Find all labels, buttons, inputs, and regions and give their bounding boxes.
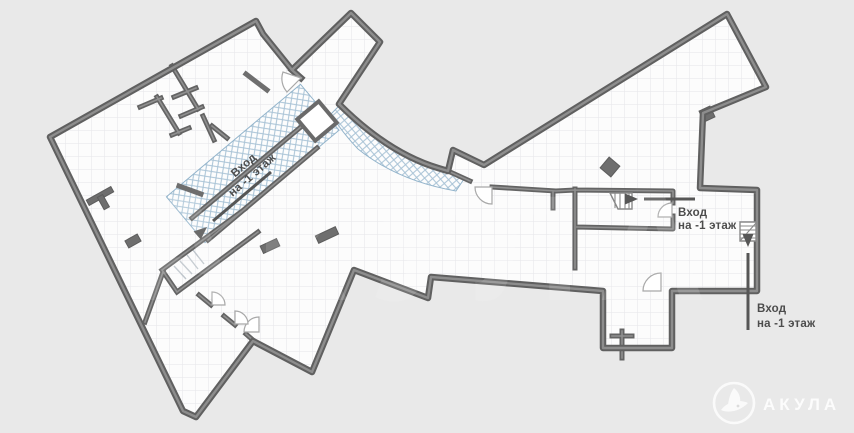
floor-plan-screenshot: Вход на -1 этаж Вход на -1 этаж Вход на …: [0, 0, 854, 433]
logo-text: АКУЛА: [763, 395, 840, 414]
watermark-text: АКУЛА: [130, 164, 725, 332]
floor-plan-canvas: Вход на -1 этаж Вход на -1 этаж Вход на …: [0, 0, 854, 433]
svg-text:Вход: Вход: [757, 303, 787, 315]
svg-text:на -1 этаж: на -1 этаж: [757, 318, 816, 330]
